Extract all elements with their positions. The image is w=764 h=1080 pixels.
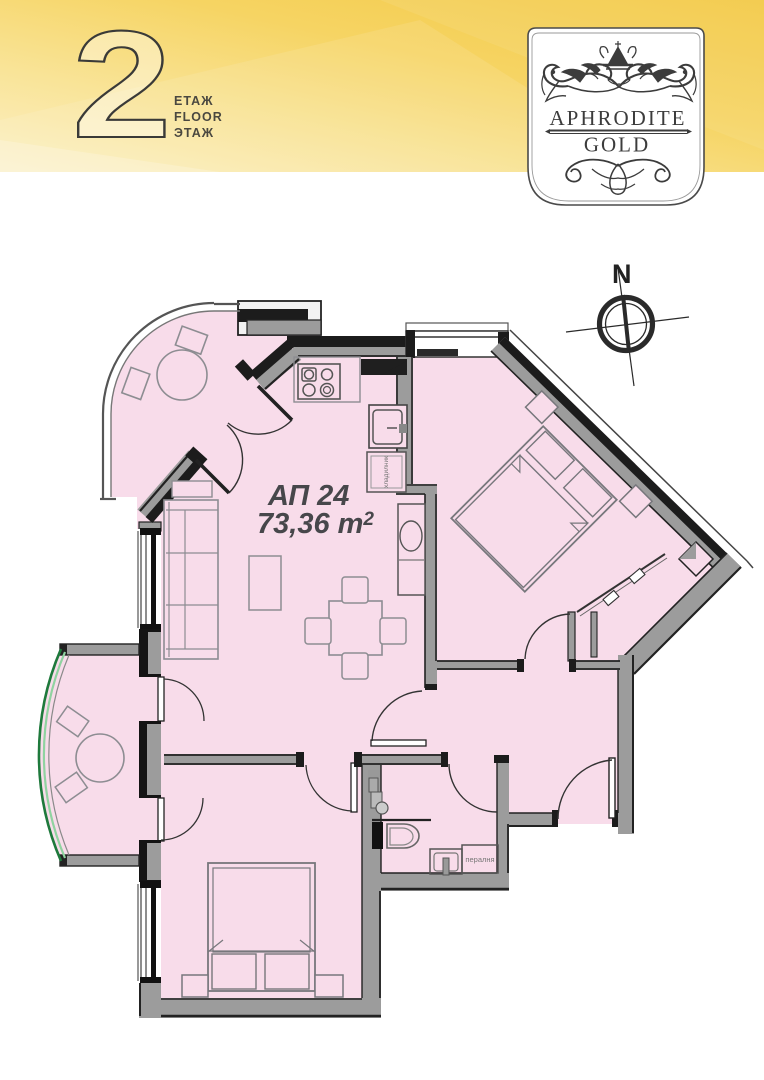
svg-text:ЭТАЖ: ЭТАЖ: [174, 126, 214, 140]
svg-text:пералня: пералня: [465, 855, 494, 864]
svg-text:GOLD: GOLD: [584, 133, 650, 157]
svg-text:ЕТАЖ: ЕТАЖ: [174, 94, 214, 108]
svg-text:APHRODITE: APHRODITE: [550, 106, 687, 130]
svg-text:N: N: [612, 259, 632, 289]
svg-text:хладилник: хладилник: [383, 456, 390, 488]
svg-text:2: 2: [72, 0, 172, 170]
svg-text:FLOOR: FLOOR: [174, 110, 223, 124]
svg-text:73,36 m2: 73,36 m2: [257, 508, 374, 540]
